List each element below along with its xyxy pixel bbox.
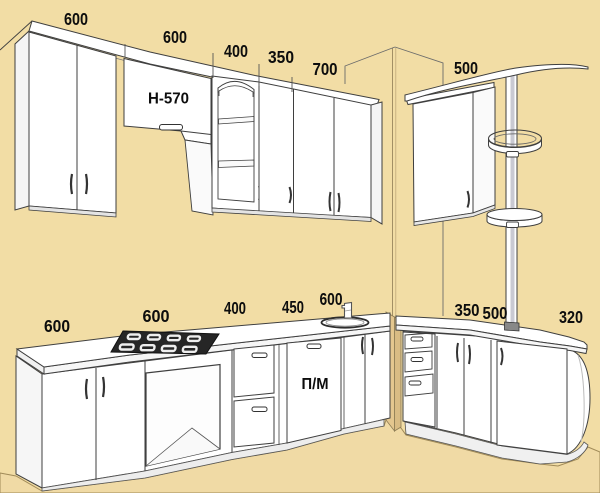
svg-text:320: 320 (559, 307, 583, 327)
svg-text:450: 450 (282, 297, 304, 317)
svg-text:500: 500 (454, 58, 478, 78)
svg-text:400: 400 (224, 41, 248, 61)
svg-text:500: 500 (483, 303, 508, 323)
svg-text:700: 700 (313, 59, 338, 79)
svg-text:600: 600 (320, 289, 343, 309)
svg-text:400: 400 (224, 298, 246, 318)
svg-text:600: 600 (64, 9, 88, 29)
svg-text:350: 350 (268, 47, 294, 67)
svg-text:600: 600 (44, 316, 70, 336)
svg-text:П/М: П/М (302, 376, 329, 393)
svg-text:Н-570: Н-570 (148, 91, 189, 108)
svg-text:600: 600 (163, 27, 187, 47)
svg-text:350: 350 (455, 300, 480, 320)
svg-text:600: 600 (143, 306, 170, 326)
